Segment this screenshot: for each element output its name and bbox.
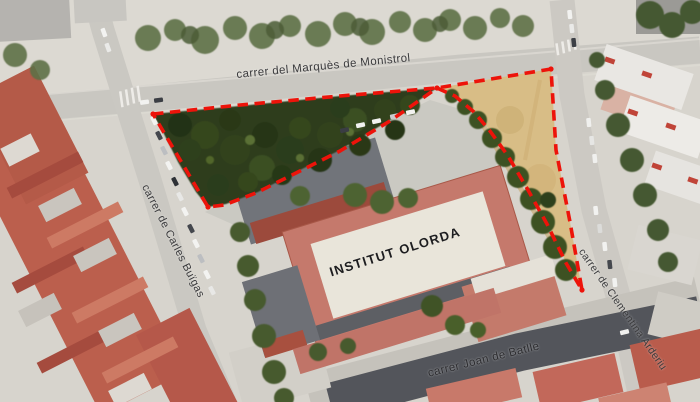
aerial-map: carrer del Marquès de Monistrol carrer d… — [0, 0, 700, 402]
